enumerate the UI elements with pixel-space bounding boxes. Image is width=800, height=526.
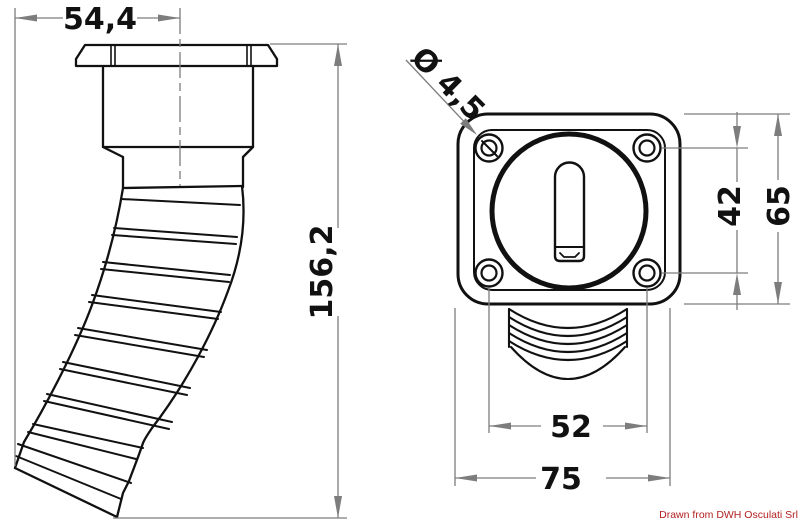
dim-total-height-label: 156,2	[305, 225, 340, 320]
cap-neck	[103, 147, 253, 188]
dim-hole-spacing-horizontal-label: 52	[550, 410, 592, 445]
cap-barrel	[103, 66, 253, 147]
technical-drawing-page: 54,4 156,2 Ø 4,5 42	[0, 0, 800, 526]
screw-hole-bottom-right	[634, 260, 661, 287]
credit-text: Drawn from DWH Osculati Srl	[659, 509, 798, 521]
dim-flange-height-label: 65	[762, 185, 797, 227]
threaded-neck	[509, 309, 627, 379]
dim-top-width-label: 54,4	[63, 2, 137, 37]
hose-left-edge	[15, 188, 123, 468]
cap-flange-edge-lines	[111, 46, 251, 65]
screw-hole-top-left	[476, 135, 503, 162]
side-view	[15, 45, 277, 517]
dimension-top-width: 54,4	[15, 2, 180, 466]
dim-flange-width-label: 75	[540, 462, 582, 497]
screw-hole-bottom-left	[476, 260, 503, 287]
dim-hole-spacing-vertical-label: 42	[713, 185, 748, 227]
deck-filler-technical-drawing: 54,4 156,2 Ø 4,5 42	[0, 0, 800, 526]
dim-hole-diameter-label: Ø 4,5	[404, 40, 492, 128]
hose-top-edge	[123, 186, 242, 188]
screw-hole-top-right	[634, 135, 661, 162]
hose-end-face	[15, 468, 117, 517]
dimension-total-height: 156,2	[113, 44, 347, 518]
